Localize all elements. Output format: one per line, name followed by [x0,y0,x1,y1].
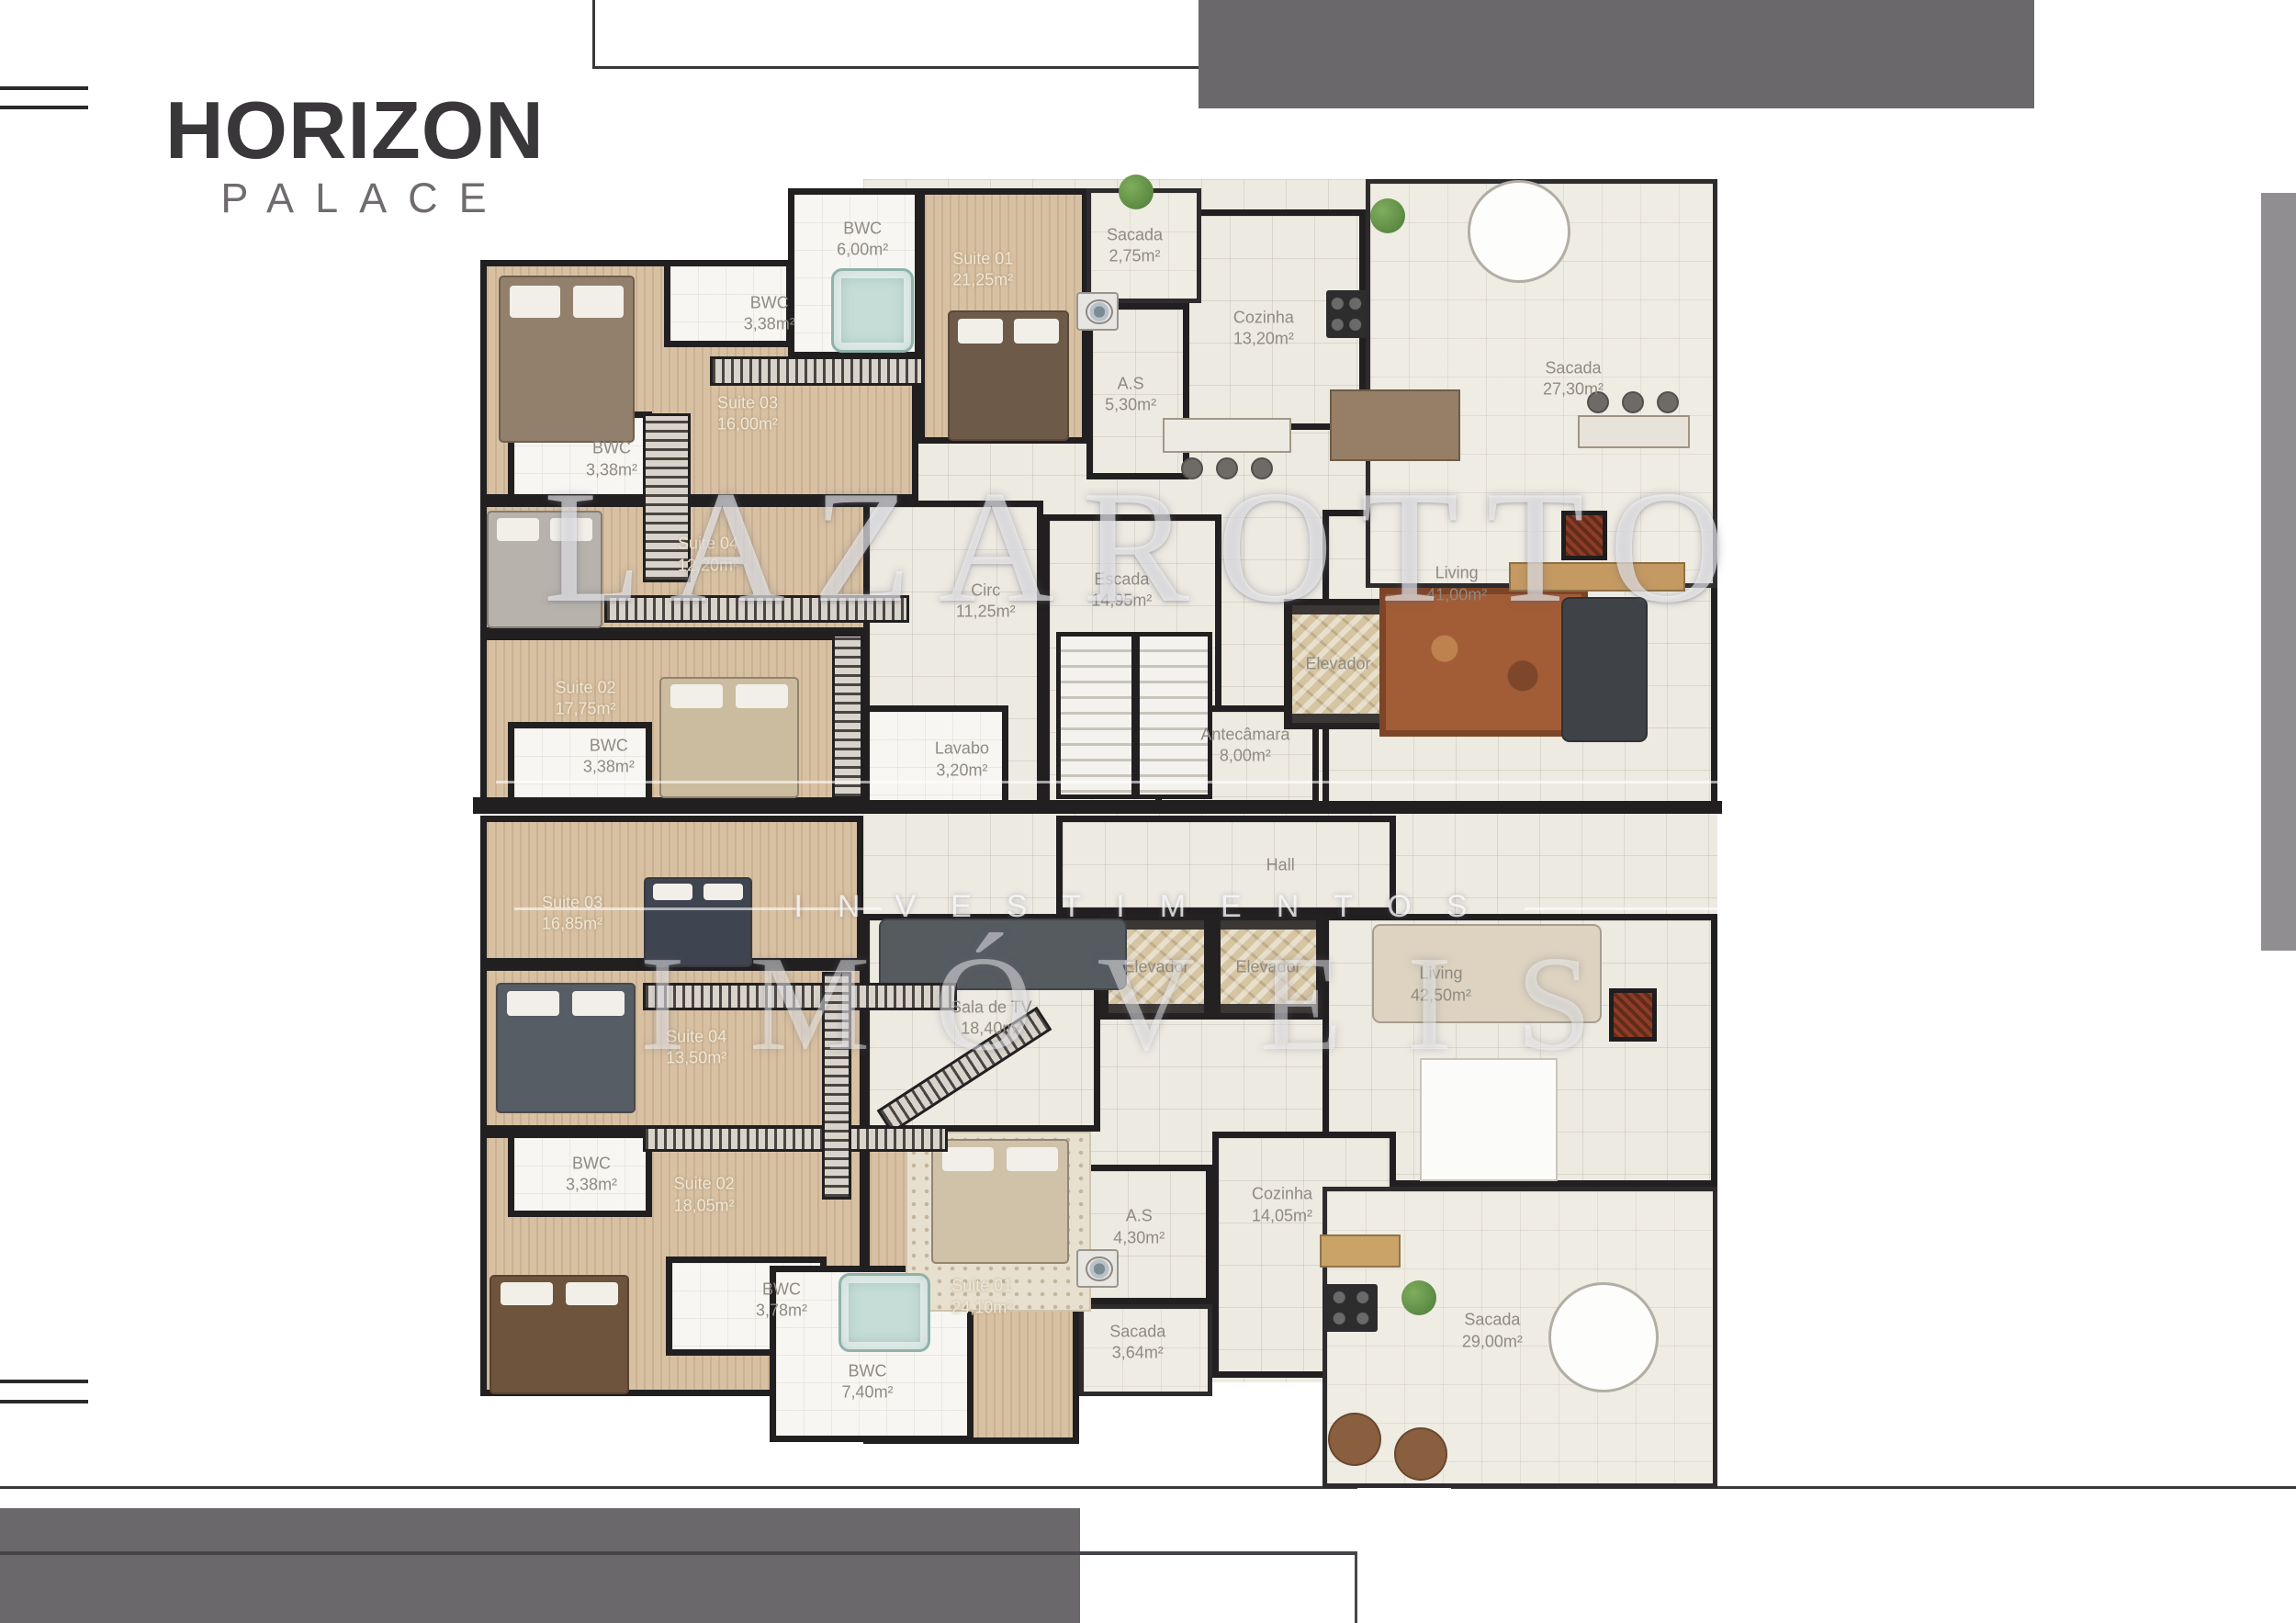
room-label-sacada-21: Sacada27,30m² [1543,358,1604,401]
hatch-shape-50 [822,972,851,1200]
wall-shape-0 [473,797,868,814]
hatch-shape-48 [643,983,957,1010]
counter-shape-11 [1578,415,1690,448]
stove-shape-41 [1324,1284,1378,1332]
washer-shape-47 [1076,1249,1119,1288]
room-label-suite-01-4: Suite 0121,25m² [952,249,1013,292]
stool-shape-44 [1328,1413,1381,1466]
sofa-shape-9 [1561,597,1648,742]
room-area: 17,75m² [555,699,615,720]
rug-shape-8 [1379,588,1588,737]
counter-shape-16 [1509,562,1685,592]
room-area: 29,00m² [1462,1331,1523,1352]
room-name: Antecâmara [1200,725,1289,746]
hatch-shape-29 [832,634,863,799]
bed-shape-3 [948,310,1069,441]
stool-shape-45 [1394,1427,1447,1481]
brand-title: HORIZON [165,90,542,171]
room-name: Suite 01 [952,249,1013,270]
bed-shape-4 [487,511,602,628]
room-area: 41,00m² [1426,584,1487,605]
room-label-suite-04-6: Suite 0413,50m² [666,1027,726,1070]
fire-shape-15 [1561,511,1607,560]
room-area: 12,20m² [678,555,738,576]
room-name: BWC [756,1279,807,1300]
room-name: A.S [1113,1206,1165,1227]
room-name: Suite 03 [717,392,778,413]
room-label-sala-de-tv-17: Sala de TV18,40m² [951,997,1032,1040]
room-label-sacada-20: Sacada2,75m² [1107,224,1163,267]
room-label-living-11: Living41,00m² [1426,563,1487,606]
room-label-bwc-27: BWC3,38m² [583,735,635,778]
room-label-bwc-29: BWC3,38m² [566,1153,617,1196]
bottom-rule-left [0,1486,1357,1489]
room-name: BWC [744,293,795,314]
bed-shape-34 [931,1139,1069,1264]
room-label-escada-13: Escada14,95m² [1091,569,1152,612]
room-name: BWC [842,1360,894,1381]
room-name: Sala de TV [951,997,1032,1018]
top-right-gray-bar [1199,0,2034,108]
room-label-antec-mara-14: Antecâmara8,00m² [1200,725,1289,768]
room-name: Sacada [1462,1310,1523,1331]
sofa-shape-38 [1372,924,1602,1023]
top-frame-left-edge [592,0,595,68]
room-label-living-16: Living42,50m² [1411,964,1471,1007]
room-label-suite-02-7: Suite 0218,05m² [674,1174,735,1217]
room-name: Hall [1266,854,1295,875]
top-left-rule-1 [0,86,88,90]
top-left-rule-2 [0,106,88,109]
room-area: 14,95m² [1091,591,1152,612]
bottom-frame-right-edge [1355,1551,1357,1623]
floorplan-page: HORIZON PALACE Suite 0316,00m²Suite 0412… [0,0,2296,1623]
room-label-elevador-32: Elevador [1305,653,1370,674]
room-label-lavabo-28: Lavabo3,20m² [935,738,989,782]
tablew-shape-39 [1420,1058,1558,1181]
room-name: Suite 03 [542,893,602,914]
room-name: Suite 04 [666,1027,726,1048]
stool-shape-13 [1622,391,1644,413]
room-label-suite-03-1: Suite 0316,00m² [717,392,778,435]
room-name: BWC [586,438,637,459]
right-scroll-strip [2261,193,2296,951]
room-name: Elevador [1235,956,1300,977]
room-area: 21,25m² [952,270,1013,291]
room-label-elevador-33: Elevador [1123,956,1188,977]
jacuzzi-shape-6 [831,268,914,353]
hatch-shape-26 [710,356,924,386]
sofa-shape-36 [879,919,1127,990]
room-area: 3,20m² [935,760,989,781]
room-name: Suite 02 [674,1174,735,1195]
jacuzzi-shape-35 [838,1273,930,1352]
counter-shape-42 [1320,1234,1401,1268]
room-label-sacada-22: Sacada3,64m² [1109,1322,1165,1365]
room-label-bwc-31: BWC7,40m² [842,1360,894,1403]
room-label-bwc-24: BWC6,00m² [837,218,888,261]
room-label-cozinha-19: Cozinha14,05m² [1252,1184,1312,1227]
room-area: 16,85m² [542,914,602,935]
room-label-bwc-25: BWC3,38m² [744,293,795,336]
counter-shape-18 [1163,418,1291,453]
room-area: 8,00m² [1200,746,1289,767]
room-area: 18,40m² [951,1019,1032,1040]
fire-shape-40 [1609,988,1657,1042]
room-label-sacada-23: Sacada29,00m² [1462,1310,1523,1353]
room-area: 3,38m² [566,1175,617,1196]
room-name: BWC [566,1153,617,1174]
room-label-circ-12: Circ11,25m² [956,580,1016,623]
bottom-dark-rule [0,1551,1357,1555]
room-area: 5,30m² [1105,395,1156,416]
room-name: Sacada [1109,1322,1165,1343]
room-label-suite-01-8: Suite 0124,10m² [951,1276,1012,1319]
room-area: 3,78m² [756,1301,807,1322]
room-name: Suite 02 [555,677,615,698]
room-area: 24,10m² [951,1297,1012,1318]
bed-shape-2 [499,276,635,443]
room-name: BWC [837,218,888,239]
room-name: Elevador [1305,653,1370,674]
room-name: Living [1426,563,1487,584]
room-name: Suite 01 [951,1276,1012,1297]
room-name: Living [1411,964,1471,985]
table-shape-17 [1330,389,1460,461]
room-label-a-s-10: A.S5,30m² [1105,373,1156,416]
room-area: 3,64m² [1109,1343,1165,1364]
room-area: 27,30m² [1543,379,1604,400]
washer-shape-23 [1076,292,1119,331]
round-shape-10 [1468,180,1570,283]
room-name: Cozinha [1233,307,1294,328]
room-area: 18,05m² [674,1195,735,1216]
room-name: Circ [956,580,1016,601]
bed-shape-32 [490,1275,629,1394]
hatch-shape-49 [643,1126,948,1152]
room-name: BWC [583,735,635,756]
room-name: Suite 04 [678,534,738,555]
plant-shape-46 [1401,1280,1436,1315]
room-area: 13,20m² [1233,329,1294,350]
round-shape-43 [1548,1282,1659,1392]
bottom-left-rule-2 [0,1400,88,1403]
room-name: Cozinha [1252,1184,1312,1205]
room-label-a-s-18: A.S4,30m² [1113,1206,1165,1249]
room-name: Sacada [1107,224,1163,245]
room-label-hall-15: Hall [1266,854,1295,875]
room-label-suite-04-2: Suite 0412,20m² [678,534,738,577]
room-area: 42,50m² [1411,985,1471,1006]
room-area: 13,50m² [666,1048,726,1069]
bed-shape-30 [644,877,752,967]
room-area: 3,38m² [583,757,635,778]
room-name: Escada [1091,569,1152,590]
plant-shape-24 [1119,175,1154,209]
room-area: 4,30m² [1113,1227,1165,1248]
stool-shape-20 [1216,457,1238,479]
room-area: 3,38m² [744,314,795,335]
room-hall-15 [1056,816,1396,914]
stove-shape-22 [1326,290,1367,338]
room-name: Lavabo [935,738,989,760]
room-area: 14,05m² [1252,1205,1312,1226]
stool-shape-19 [1181,457,1203,479]
room-area: 7,40m² [842,1382,894,1403]
room-label-suite-02-3: Suite 0217,75m² [555,677,615,720]
stool-shape-21 [1251,457,1273,479]
room-area: 11,25m² [956,602,1016,623]
room-name: Elevador [1123,956,1188,977]
stairs-shape-7 [1056,632,1212,799]
bed-shape-5 [659,677,799,798]
bottom-gray-bar [0,1508,1080,1623]
room-name: Sacada [1543,358,1604,379]
room-label-bwc-26: BWC3,38m² [586,438,637,481]
room-area: 16,00m² [717,414,778,435]
brand-logo: HORIZON PALACE [165,90,542,222]
bottom-left-rule-1 [0,1380,88,1383]
room-label-suite-03-5: Suite 0316,85m² [542,893,602,936]
room-label-elevador-34: Elevador [1235,956,1300,977]
room-area: 3,38m² [586,459,637,480]
room-label-bwc-30: BWC3,78m² [756,1279,807,1322]
bed-shape-31 [496,983,636,1113]
room-name: A.S [1105,373,1156,394]
stool-shape-14 [1657,391,1679,413]
room-area: 2,75m² [1107,246,1163,267]
room-area: 6,00m² [837,240,888,261]
plant-shape-25 [1370,198,1405,233]
wall-shape-1 [859,801,1722,814]
hatch-shape-28 [604,595,909,623]
brand-subtitle: PALACE [165,175,542,222]
room-label-cozinha-9: Cozinha13,20m² [1233,307,1294,350]
